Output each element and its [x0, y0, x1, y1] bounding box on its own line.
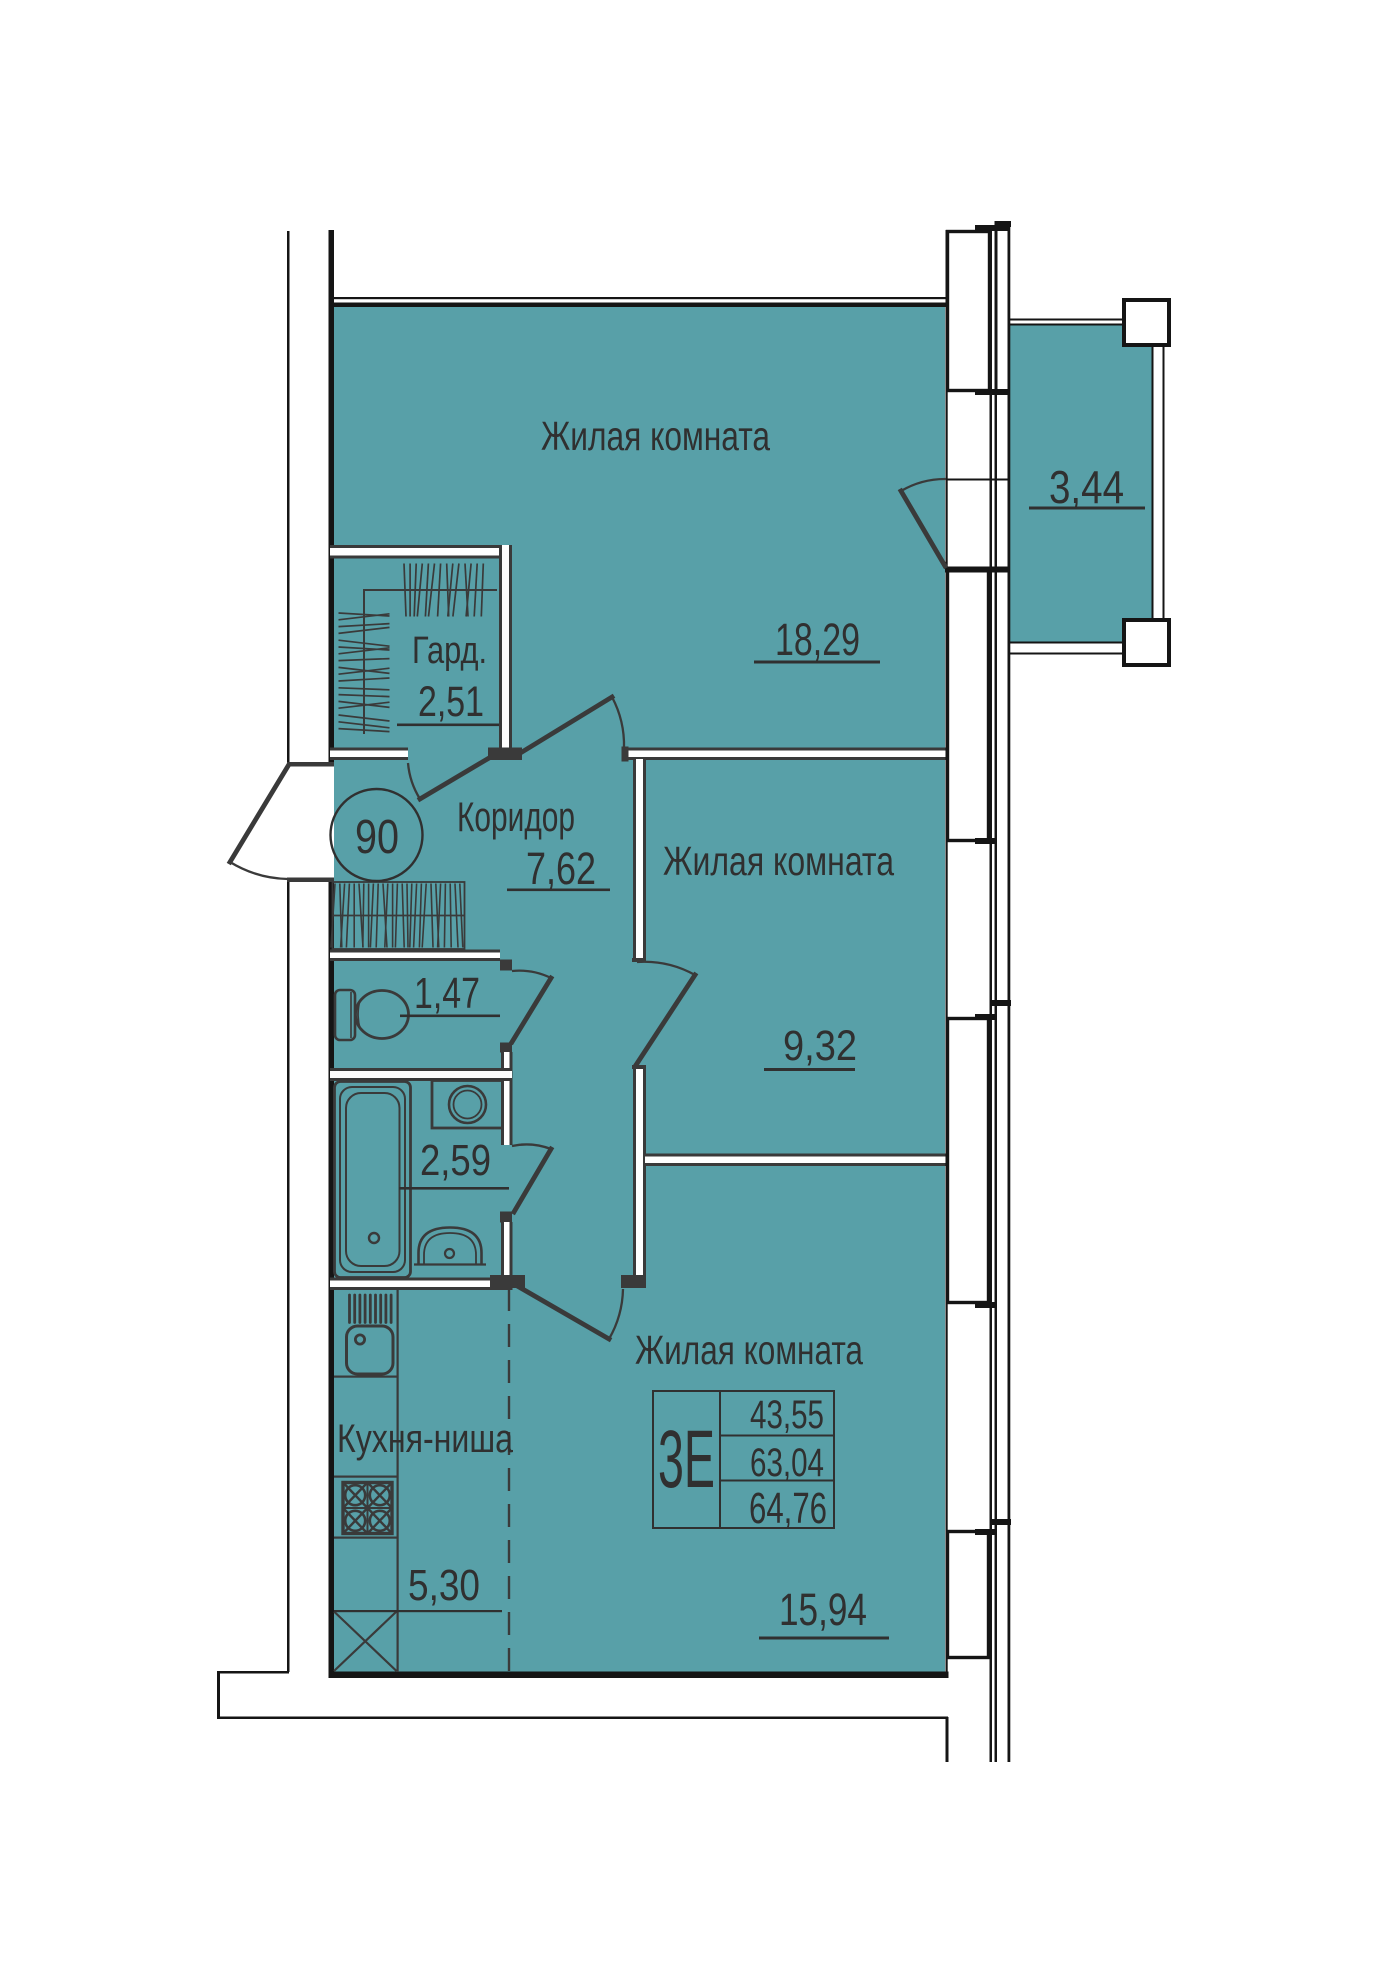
svg-text:63,04: 63,04 — [750, 1441, 824, 1485]
svg-text:Жилая комната: Жилая комната — [635, 1327, 863, 1373]
svg-text:3Е: 3Е — [658, 1414, 715, 1505]
svg-text:64,76: 64,76 — [749, 1484, 827, 1533]
svg-text:43,55: 43,55 — [750, 1393, 824, 1437]
svg-text:7,62: 7,62 — [526, 843, 596, 894]
svg-text:18,29: 18,29 — [775, 614, 860, 665]
svg-text:15,94: 15,94 — [779, 1584, 867, 1635]
svg-text:5,30: 5,30 — [408, 1561, 480, 1610]
svg-text:Гард.: Гард. — [412, 630, 487, 672]
svg-text:Кухня-ниша: Кухня-ниша — [337, 1417, 514, 1461]
svg-text:2,59: 2,59 — [420, 1136, 491, 1185]
svg-text:1,47: 1,47 — [414, 969, 480, 1018]
svg-text:9,32: 9,32 — [783, 1022, 857, 1070]
svg-text:Коридор: Коридор — [457, 793, 575, 840]
svg-text:2,51: 2,51 — [418, 678, 484, 726]
svg-text:90: 90 — [355, 811, 399, 864]
svg-text:Жилая комната: Жилая комната — [663, 838, 894, 884]
svg-text:Жилая комната: Жилая комната — [541, 413, 770, 459]
svg-text:3,44: 3,44 — [1049, 461, 1124, 513]
